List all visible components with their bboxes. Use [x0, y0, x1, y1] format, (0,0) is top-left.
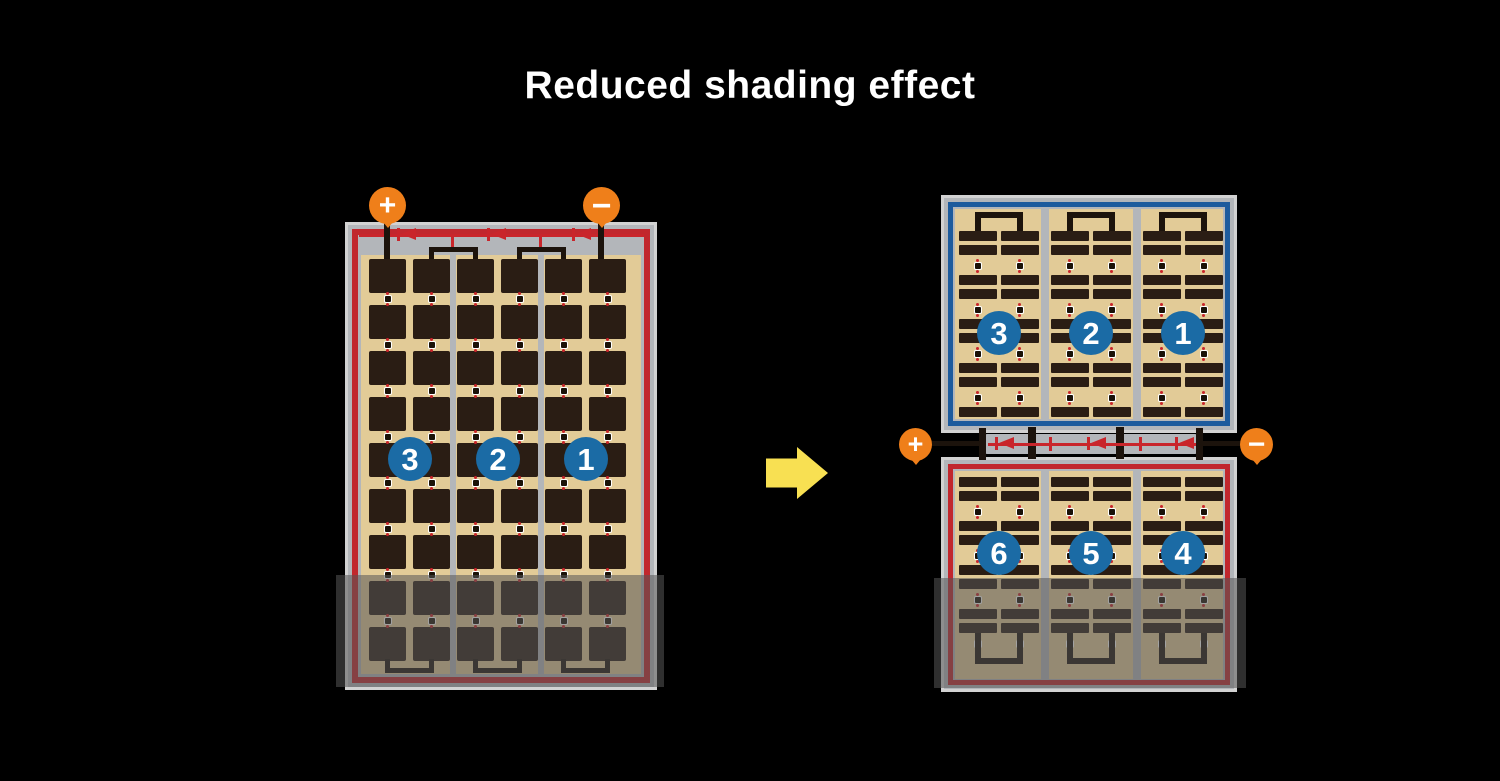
cell-connector-dot [1016, 505, 1023, 519]
top-bridge-leg [975, 212, 981, 233]
tab-ribbon [560, 295, 568, 303]
cell-connector-dot [472, 476, 479, 490]
cell-connector-dot [560, 430, 567, 444]
left-string-badge-1: 1 [564, 437, 608, 481]
solar-cell [457, 397, 494, 431]
half-cut-cell [959, 407, 997, 417]
solder-dot [386, 487, 389, 490]
half-cut-cell [1051, 363, 1089, 373]
tab-ribbon [604, 433, 612, 441]
cell-connector-dot [560, 384, 567, 398]
tab-ribbon [974, 508, 982, 516]
solder-dot [386, 303, 389, 306]
half-cut-cell [1185, 245, 1223, 255]
cell-connector-dot [974, 505, 981, 519]
solder-dot [976, 270, 979, 273]
solar-cell [369, 397, 406, 431]
right-bottom-string-badge-4: 4 [1161, 531, 1205, 575]
half-cut-cell [1093, 477, 1131, 487]
cell-connector-dot [1066, 505, 1073, 519]
top-bridge-leg [1067, 212, 1073, 233]
half-cut-cell [1093, 245, 1131, 255]
solar-cell [501, 305, 538, 339]
solar-cell [545, 305, 582, 339]
solder-dot [606, 533, 609, 536]
cell-connector-dot [384, 430, 391, 444]
tab-ribbon [384, 433, 392, 441]
solder-dot [606, 303, 609, 306]
cell-connector-dot [1158, 505, 1165, 519]
solder-dot [386, 395, 389, 398]
half-cut-cell [1093, 407, 1131, 417]
solar-cell [413, 397, 450, 431]
tab-ribbon [384, 295, 392, 303]
cell-connector-dot [516, 292, 523, 306]
half-cut-cell [1185, 289, 1223, 299]
solar-cell [457, 259, 494, 293]
cell-connector-dot [1200, 505, 1207, 519]
diode-cathode-bar [1175, 437, 1178, 450]
tab-ribbon [1200, 394, 1208, 402]
bypass-diode-icon [491, 228, 506, 240]
solder-dot [606, 395, 609, 398]
solder-dot [474, 533, 477, 536]
diode-cathode-bar [1087, 437, 1090, 450]
top-bridge-leg [1017, 212, 1023, 233]
cell-connector-dot [384, 292, 391, 306]
solar-cell [457, 351, 494, 385]
cell-connector-dot [604, 292, 611, 306]
top-bridge [1159, 212, 1207, 218]
solder-dot [474, 487, 477, 490]
solar-cell [457, 489, 494, 523]
half-cut-cell [1093, 521, 1131, 531]
solder-dot [386, 533, 389, 536]
solder-dot [1110, 270, 1113, 273]
half-cut-cell [1001, 289, 1039, 299]
tab-ribbon [604, 387, 612, 395]
solder-dot [1110, 314, 1113, 317]
solar-cell [545, 351, 582, 385]
tab-ribbon [1200, 350, 1208, 358]
half-cut-cell [1001, 275, 1039, 285]
solar-cell [501, 397, 538, 431]
bypass-diode-icon [576, 228, 591, 240]
tab-ribbon [516, 525, 524, 533]
solder-dot [518, 303, 521, 306]
solder-dot [518, 349, 521, 352]
half-cut-cell [1051, 231, 1089, 241]
half-cut-cell [1093, 491, 1131, 501]
solar-cell [589, 535, 626, 569]
tab-ribbon [1016, 262, 1024, 270]
cell-connector-dot [560, 522, 567, 536]
tab-ribbon [428, 341, 436, 349]
solder-dot [562, 441, 565, 444]
cell-connector-dot [516, 338, 523, 352]
half-cut-cell [1001, 477, 1039, 487]
tab-ribbon [1016, 306, 1024, 314]
cell-connector-dot [1200, 303, 1207, 317]
solder-dot [1018, 358, 1021, 361]
tab-ribbon [1066, 508, 1074, 516]
diode-cathode-bar [572, 228, 575, 241]
top-bridge-leg [1159, 212, 1165, 233]
solar-cell [369, 535, 406, 569]
solder-dot [1202, 516, 1205, 519]
half-cut-cell [1143, 245, 1181, 255]
tab-ribbon [1108, 508, 1116, 516]
tab-ribbon [1200, 508, 1208, 516]
tab-ribbon [1200, 306, 1208, 314]
cell-connector-dot [472, 292, 479, 306]
tab-ribbon [428, 295, 436, 303]
cell-connector-dot [384, 522, 391, 536]
tab-ribbon [1016, 350, 1024, 358]
solder-dot [1202, 314, 1205, 317]
cell-connector-dot [1066, 259, 1073, 273]
solder-dot [1202, 358, 1205, 361]
half-cut-cell [959, 377, 997, 387]
tab-ribbon [384, 479, 392, 487]
tab-ribbon [428, 433, 436, 441]
solder-dot [430, 533, 433, 536]
solder-dot [1068, 314, 1071, 317]
left-panel-negative-terminal: − [583, 187, 620, 224]
solder-dot [562, 487, 565, 490]
tab-ribbon [516, 433, 524, 441]
tab-ribbon [472, 295, 480, 303]
solder-dot [1018, 270, 1021, 273]
top-bridge [1067, 212, 1115, 218]
half-cut-cell [1185, 275, 1223, 285]
right-bus-tick [1139, 437, 1142, 451]
tab-ribbon [560, 433, 568, 441]
cell-connector-dot [974, 303, 981, 317]
half-cut-cell [1093, 377, 1131, 387]
solder-dot [474, 441, 477, 444]
solar-cell [413, 489, 450, 523]
solar-cell [413, 351, 450, 385]
solder-dot [1160, 358, 1163, 361]
tab-ribbon [1108, 306, 1116, 314]
half-cut-cell [1093, 289, 1131, 299]
solder-dot [976, 314, 979, 317]
cell-connector-dot [1066, 303, 1073, 317]
tab-ribbon [1016, 508, 1024, 516]
cell-connector-dot [604, 430, 611, 444]
shading-overlay-right [934, 578, 1246, 688]
right-bus-tick [1049, 437, 1052, 451]
cell-connector-dot [974, 391, 981, 405]
half-cut-cell [1143, 289, 1181, 299]
solar-cell [413, 305, 450, 339]
diagram-canvas: Reduced shading effect + − + − 3 2 1 3 2… [0, 0, 1500, 781]
half-cut-cell [1143, 231, 1181, 241]
cell-connector-dot [428, 522, 435, 536]
diode-cathode-bar [995, 437, 998, 450]
cell-connector-dot [384, 338, 391, 352]
tab-ribbon [384, 525, 392, 533]
solar-cell [589, 397, 626, 431]
cell-connector-dot [428, 430, 435, 444]
half-cut-cell [1185, 377, 1223, 387]
solder-dot [1202, 402, 1205, 405]
top-bridge-leg [1201, 212, 1207, 233]
half-cut-cell [1051, 491, 1089, 501]
half-cut-cell [1185, 521, 1223, 531]
cell-connector-dot [1158, 347, 1165, 361]
tab-ribbon [1066, 350, 1074, 358]
half-cut-cell [1143, 491, 1181, 501]
tab-ribbon [1108, 394, 1116, 402]
left-string-badge-2: 2 [476, 437, 520, 481]
cell-connector-dot [472, 384, 479, 398]
solar-cell [589, 259, 626, 293]
tab-ribbon [516, 387, 524, 395]
cell-connector-dot [1108, 303, 1115, 317]
solder-dot [1202, 270, 1205, 273]
solar-cell [545, 489, 582, 523]
cell-connector-dot [1108, 391, 1115, 405]
half-cut-cell [1143, 407, 1181, 417]
tab-ribbon [560, 525, 568, 533]
bypass-diode-icon [999, 437, 1014, 449]
tab-ribbon [1158, 394, 1166, 402]
solder-dot [606, 349, 609, 352]
half-cut-cell [1001, 231, 1039, 241]
solder-dot [606, 441, 609, 444]
cell-connector-dot [516, 476, 523, 490]
solder-dot [430, 349, 433, 352]
left-panel-positive-terminal: + [369, 187, 406, 224]
tab-ribbon [1066, 306, 1074, 314]
half-cut-cell [959, 477, 997, 487]
cell-connector-dot [1158, 303, 1165, 317]
solder-dot [1068, 516, 1071, 519]
solar-cell [457, 535, 494, 569]
cell-connector-dot [1108, 505, 1115, 519]
cell-connector-dot [516, 522, 523, 536]
cell-connector-dot [974, 347, 981, 361]
cell-connector-dot [560, 292, 567, 306]
half-cut-cell [1051, 477, 1089, 487]
tab-ribbon [1158, 306, 1166, 314]
cell-connector-dot [1016, 303, 1023, 317]
tab-ribbon [604, 341, 612, 349]
half-cut-cell [959, 521, 997, 531]
cell-connector-dot [428, 384, 435, 398]
tab-ribbon [1200, 262, 1208, 270]
solar-cell [545, 259, 582, 293]
solder-dot [430, 395, 433, 398]
half-cut-cell [1001, 245, 1039, 255]
half-cut-cell [959, 231, 997, 241]
solder-dot [1110, 516, 1113, 519]
positive-lead-wire [929, 441, 981, 446]
tab-ribbon [974, 394, 982, 402]
tab-ribbon [1066, 262, 1074, 270]
cell-connector-dot [1066, 347, 1073, 361]
tab-ribbon [604, 295, 612, 303]
cell-connector-dot [1158, 391, 1165, 405]
solder-dot [976, 516, 979, 519]
left-string-badge-3: 3 [388, 437, 432, 481]
tab-ribbon [428, 525, 436, 533]
cell-connector-dot [472, 522, 479, 536]
tab-ribbon [1016, 394, 1024, 402]
solar-cell [369, 489, 406, 523]
cell-connector-dot [384, 384, 391, 398]
solder-dot [518, 487, 521, 490]
cell-connector-dot [1016, 259, 1023, 273]
diode-cathode-bar [397, 228, 400, 241]
solder-dot [518, 441, 521, 444]
bypass-diode-icon [1179, 437, 1194, 449]
top-bridge [975, 212, 1023, 218]
cell-connector-dot [560, 338, 567, 352]
cell-connector-dot [516, 384, 523, 398]
bypass-diode-icon [401, 228, 416, 240]
panel-graphics-layer [0, 0, 1500, 781]
tab-ribbon [1158, 508, 1166, 516]
cell-connector-dot [1108, 347, 1115, 361]
half-cut-cell [1001, 363, 1039, 373]
tab-ribbon [472, 525, 480, 533]
cell-connector-dot [472, 430, 479, 444]
half-cut-cell [1001, 491, 1039, 501]
tab-ribbon [516, 479, 524, 487]
tab-ribbon [472, 341, 480, 349]
solar-cell [413, 259, 450, 293]
half-cut-cell [1185, 477, 1223, 487]
solder-dot [1018, 402, 1021, 405]
solder-dot [386, 441, 389, 444]
solder-dot [1160, 270, 1163, 273]
solder-dot [1110, 358, 1113, 361]
half-cut-cell [1051, 521, 1089, 531]
cell-connector-dot [472, 338, 479, 352]
right-bottom-string-badge-6: 6 [977, 531, 1021, 575]
solder-dot [562, 349, 565, 352]
right-bottom-string-badge-5: 5 [1069, 531, 1113, 575]
solder-dot [562, 303, 565, 306]
cell-connector-dot [1066, 391, 1073, 405]
solder-dot [1160, 402, 1163, 405]
half-cut-cell [959, 491, 997, 501]
tab-ribbon [1108, 262, 1116, 270]
tab-ribbon [1158, 350, 1166, 358]
half-cut-cell [1185, 363, 1223, 373]
half-cut-cell [959, 245, 997, 255]
tab-ribbon [560, 387, 568, 395]
cell-connector-dot [604, 338, 611, 352]
half-cut-cell [1051, 289, 1089, 299]
cell-connector-dot [974, 259, 981, 273]
right-top-string-badge-2: 2 [1069, 311, 1113, 355]
solder-dot [430, 487, 433, 490]
half-cut-cell [959, 289, 997, 299]
top-bridge [429, 247, 478, 252]
solder-dot [518, 533, 521, 536]
solder-dot [386, 349, 389, 352]
half-cut-cell [1051, 407, 1089, 417]
tab-ribbon [384, 341, 392, 349]
half-cut-cell [1143, 377, 1181, 387]
solder-dot [606, 487, 609, 490]
diode-cathode-bar [487, 228, 490, 241]
half-cut-cell [1185, 231, 1223, 241]
cell-connector-dot [428, 338, 435, 352]
solar-cell [501, 535, 538, 569]
half-cut-cell [1001, 407, 1039, 417]
solder-dot [430, 303, 433, 306]
right-top-string-badge-1: 1 [1161, 311, 1205, 355]
cell-connector-dot [384, 476, 391, 490]
top-bridge-leg [1109, 212, 1115, 233]
solder-dot [1018, 314, 1021, 317]
half-cut-cell [1051, 377, 1089, 387]
half-cut-cell [1093, 275, 1131, 285]
half-cut-cell [1143, 477, 1181, 487]
tab-ribbon [1066, 394, 1074, 402]
tab-ribbon [428, 387, 436, 395]
half-cut-cell [1001, 377, 1039, 387]
right-top-string-badge-3: 3 [977, 311, 1021, 355]
solar-cell [589, 305, 626, 339]
tab-ribbon [472, 479, 480, 487]
tab-ribbon [516, 341, 524, 349]
solder-dot [474, 303, 477, 306]
solder-dot [976, 402, 979, 405]
tab-ribbon [560, 479, 568, 487]
solar-cell [369, 259, 406, 293]
solder-dot [474, 349, 477, 352]
solder-dot [518, 395, 521, 398]
half-cut-cell [1001, 521, 1039, 531]
cell-connector-dot [1200, 259, 1207, 273]
half-cut-cell [1143, 275, 1181, 285]
half-cut-cell [1143, 521, 1181, 531]
tab-ribbon [1108, 350, 1116, 358]
half-cut-cell [959, 363, 997, 373]
solar-cell [545, 397, 582, 431]
right-panel-negative-terminal: − [1240, 428, 1273, 461]
solar-cell [413, 535, 450, 569]
cell-connector-dot [604, 384, 611, 398]
solder-dot [1160, 516, 1163, 519]
tab-ribbon [560, 341, 568, 349]
tab-ribbon [428, 479, 436, 487]
cell-connector-dot [1200, 391, 1207, 405]
solar-cell [369, 351, 406, 385]
solder-dot [976, 358, 979, 361]
tab-ribbon [974, 350, 982, 358]
half-cut-cell [1185, 491, 1223, 501]
half-cut-cell [1185, 407, 1223, 417]
bypass-diode-icon [1091, 437, 1106, 449]
negative-lead-wire [1200, 441, 1244, 446]
solar-cell [589, 351, 626, 385]
cell-connector-dot [604, 522, 611, 536]
tab-ribbon [1158, 262, 1166, 270]
half-cut-cell [959, 275, 997, 285]
right-panel-positive-terminal: + [899, 428, 932, 461]
solder-dot [1160, 314, 1163, 317]
shading-overlay-left [336, 575, 664, 687]
tab-ribbon [384, 387, 392, 395]
solder-dot [1018, 516, 1021, 519]
